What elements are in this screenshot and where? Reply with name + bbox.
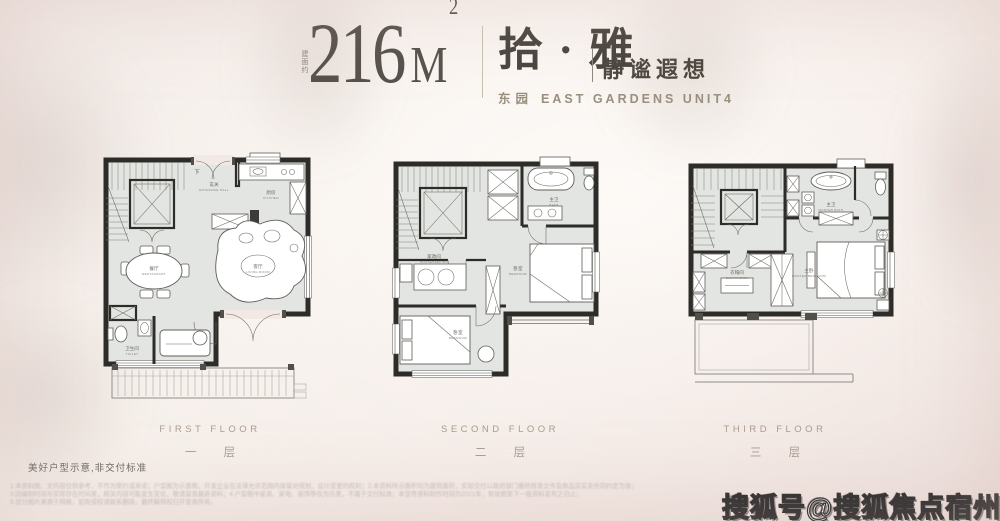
disclaimer-line: 1.本资料图、文内容仅供参考，不作为要约或承诺；户型图为示意图，开发企业在法律允… [10, 483, 710, 491]
room-label: 主卫 [826, 201, 836, 207]
caption-first-floor: FIRST FLOOR 一 层 [98, 424, 322, 460]
caption-en: THIRD FLOOR [663, 424, 887, 435]
room-label: 卧室 [513, 265, 523, 272]
disclaimer-line: 5.部分图片来源于网络，如有侵权请联系删除，最终解释权归开发商所有。 [10, 499, 710, 507]
area-number: 216 [308, 5, 404, 101]
caption-second-floor: SECOND FLOOR 二 层 [388, 424, 612, 460]
room-label: KITCHEN [263, 196, 279, 200]
caption-cn: 三 层 [663, 444, 887, 460]
vanity [528, 206, 562, 220]
terrace [695, 313, 853, 382]
page: 建面约 216M2 拾 · 雅 静谧遐想 东园EAST GARDENS UNIT… [0, 0, 1000, 521]
floor-plan-first: 下 [96, 152, 320, 404]
disclaimer-fine-print: 1.本资料图、文内容仅供参考，不作为要约或承诺；户型图为示意图，开发企业在法律允… [10, 483, 710, 507]
room-label: 餐厅 [149, 265, 159, 272]
caption-cn: 二 层 [388, 444, 612, 460]
sohu-watermark: 搜狐号@搜狐焦点宿州站 [722, 486, 1000, 521]
area-superscript: 2 [449, 0, 458, 19]
room-label: 主卧 [804, 267, 814, 274]
room-label: 衣帽间 [730, 269, 744, 276]
room-label: 卧室 [453, 329, 463, 336]
header-divider [482, 26, 483, 98]
bed [530, 244, 594, 302]
roof-vent [837, 159, 865, 168]
header-divider-small [592, 48, 593, 82]
area-title: 216M2 [308, 10, 457, 96]
floor-plan-third: 主卫 MASTER BATH 衣帽间 CLOAKROOM 主卧 MASTER B… [681, 156, 905, 408]
caption-en: SECOND FLOOR [388, 424, 612, 435]
room-label: BEDROOM [509, 272, 527, 276]
hall-closet [486, 266, 500, 314]
sink [802, 205, 814, 216]
bathtub [811, 172, 851, 190]
room-label: TOILET [126, 352, 139, 356]
room-label: 玄关 [209, 181, 219, 188]
room-label: BEDROOM [449, 336, 467, 340]
caption-cn: 一 层 [98, 444, 322, 460]
toilet [584, 168, 594, 175]
room-label: 家政间 [427, 253, 441, 260]
roof-vent [540, 157, 570, 166]
french-doors [220, 310, 286, 341]
area-unit: M [410, 37, 447, 94]
toilet [875, 172, 886, 179]
room-label: MASTER BATH [818, 208, 843, 212]
room-label: MASTER BEDROOM [792, 274, 826, 278]
caption-en: FIRST FLOOR [98, 424, 322, 435]
room-label: 主卫 [549, 196, 559, 202]
room-label: LIVING ROOM [246, 270, 270, 274]
daybed [160, 330, 210, 356]
bed [807, 230, 889, 310]
balcony-rail [507, 316, 594, 325]
subtitle-en: EAST GARDENS UNIT4 [541, 92, 734, 106]
room-label: BATH [549, 203, 558, 207]
sofa [216, 220, 306, 302]
terrace [112, 364, 306, 398]
room-label: RESTAURANT [142, 272, 166, 276]
subtitle: 东园EAST GARDENS UNIT4 [498, 88, 734, 107]
room-label: CLOAKROOM [726, 276, 749, 280]
side-table [478, 346, 494, 362]
bathtub [528, 168, 574, 190]
room-label: 厨房 [266, 189, 276, 196]
nightstand [877, 300, 889, 310]
floor-plan-second: 主卫 BATH 卧室 BEDROOM 家政间 HOUSEKEEPING 卧室 B… [388, 156, 612, 388]
disclaimer-line: 3.因编制时间与实际存在时间差，相关内容可能发生变化，敬请留意最新资料；4.户型… [10, 491, 710, 499]
subtitle-cn: 东园 [498, 92, 533, 106]
room-label: ENTRANCE HALL [199, 188, 229, 192]
tagline: 静谧遐想 [602, 52, 710, 84]
sink [802, 192, 814, 203]
room-label: HOUSEKEEPING [420, 260, 449, 264]
room-label: 客厅 [253, 263, 263, 270]
room-label: 卫生间 [125, 345, 139, 352]
flower-shadow-decoration [900, 40, 1000, 320]
footnote: 美好户型示意,非交付标准 [28, 460, 147, 474]
stair-direction-mark: 下 [194, 169, 200, 176]
caption-third-floor: THIRD FLOOR 三 层 [663, 424, 887, 460]
